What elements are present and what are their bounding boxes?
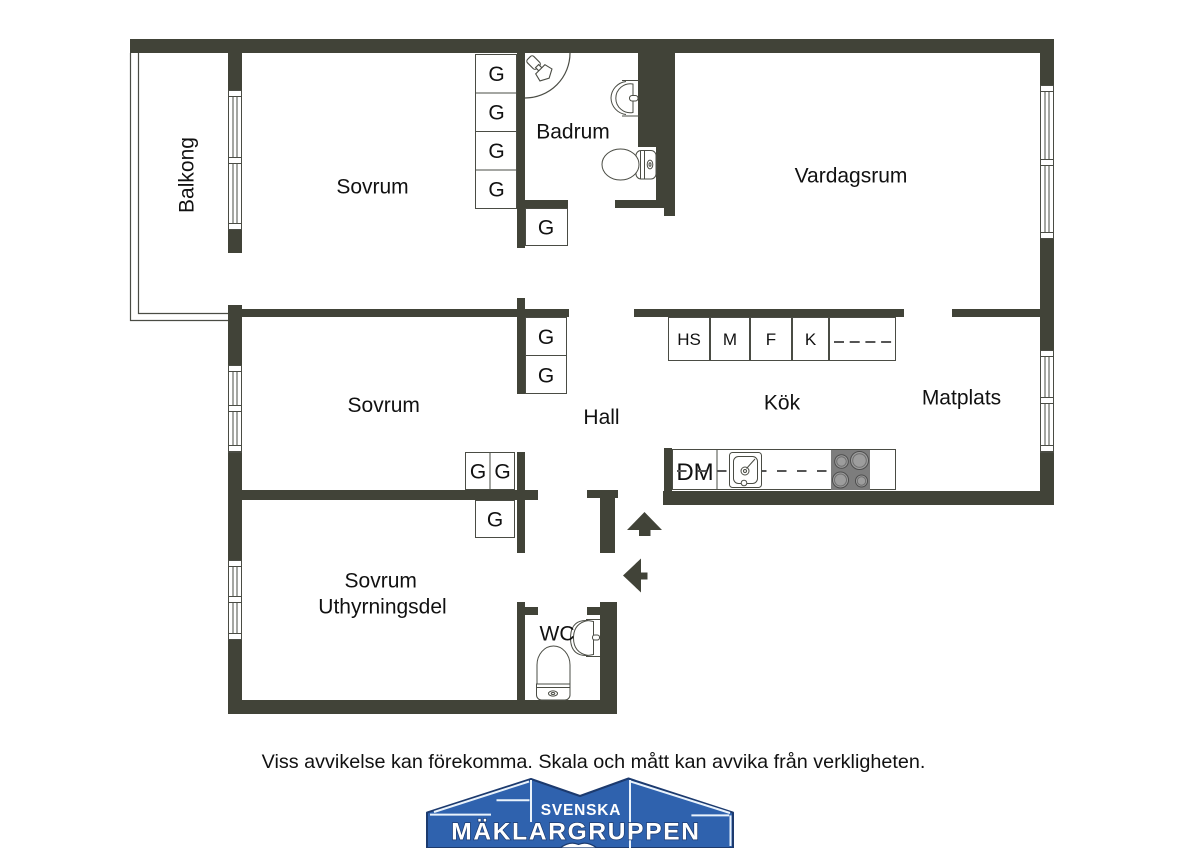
svg-text:G: G bbox=[488, 63, 504, 86]
svg-text:G: G bbox=[488, 102, 504, 125]
svg-text:G: G bbox=[488, 179, 504, 202]
svg-text:WC: WC bbox=[540, 623, 575, 646]
svg-text:F: F bbox=[766, 330, 776, 349]
svg-text:Viss avvikelse kan förekomma.: Viss avvikelse kan förekomma. Skala och … bbox=[262, 751, 926, 773]
svg-text:G: G bbox=[488, 140, 504, 163]
svg-text:Uthyrningsdel: Uthyrningsdel bbox=[318, 596, 446, 619]
svg-text:Balkong: Balkong bbox=[175, 137, 198, 213]
svg-text:Badrum: Badrum bbox=[536, 121, 610, 144]
svg-text:M: M bbox=[723, 330, 737, 349]
svg-text:HS: HS bbox=[677, 330, 701, 349]
svg-text:Sovrum: Sovrum bbox=[336, 176, 408, 199]
svg-text:Sovrum: Sovrum bbox=[345, 570, 417, 593]
svg-text:MÄKLARGRUPPEN: MÄKLARGRUPPEN bbox=[451, 819, 700, 846]
svg-text:G: G bbox=[538, 365, 554, 388]
svg-text:G: G bbox=[538, 217, 554, 240]
svg-text:Kök: Kök bbox=[764, 392, 801, 415]
svg-text:G: G bbox=[470, 461, 486, 484]
svg-text:Vardagsrum: Vardagsrum bbox=[795, 165, 908, 188]
svg-text:G: G bbox=[538, 326, 554, 349]
svg-text:DM: DM bbox=[676, 459, 713, 486]
svg-text:Matplats: Matplats bbox=[922, 387, 1001, 410]
svg-text:Hall: Hall bbox=[583, 406, 619, 429]
svg-text:G: G bbox=[487, 509, 503, 532]
svg-text:K: K bbox=[805, 330, 817, 349]
svg-text:SVENSKA: SVENSKA bbox=[541, 802, 622, 819]
svg-text:G: G bbox=[494, 461, 510, 484]
svg-text:Sovrum: Sovrum bbox=[348, 394, 420, 417]
